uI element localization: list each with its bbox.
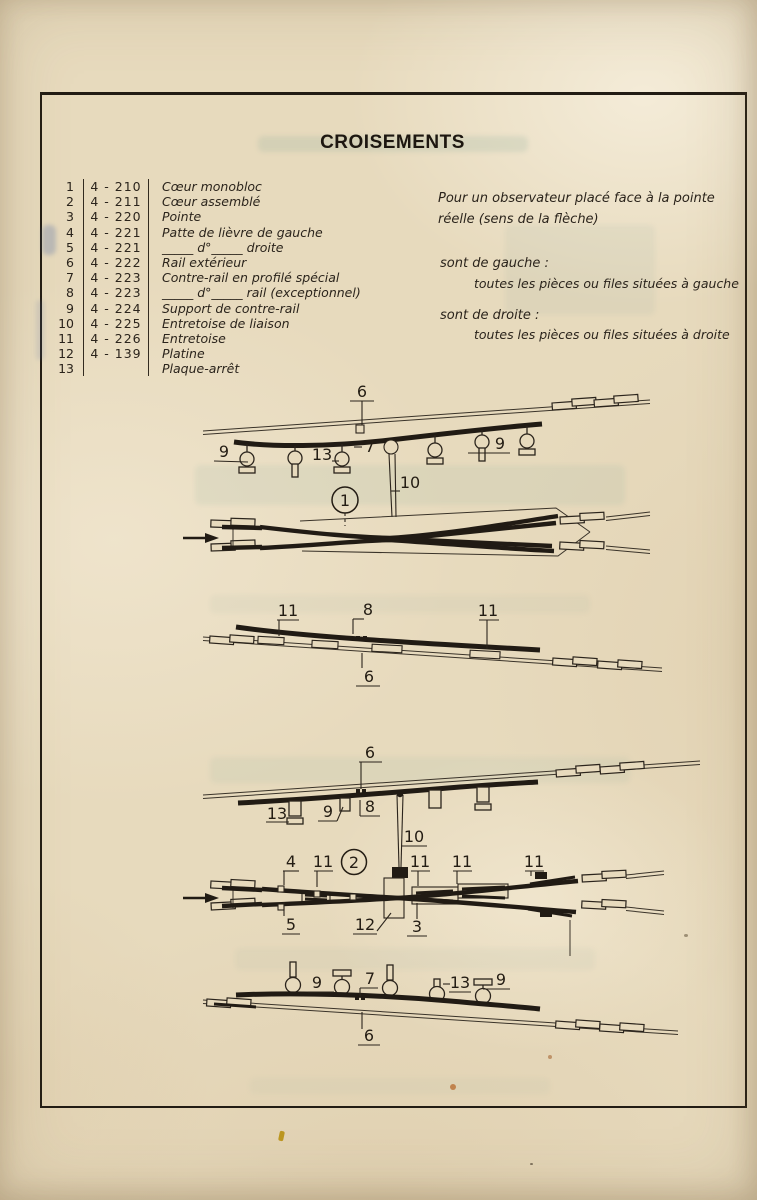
hanger-icon [475, 787, 491, 810]
rail-joint-icon [560, 540, 604, 552]
label-10: 10 [401, 827, 427, 846]
fixing-mark [356, 636, 360, 640]
diagram-double-crossing: 6 13 9 8 [183, 743, 700, 1045]
diagram-contre-rail-elevation: 11 8 11 6 [203, 600, 662, 686]
badge-2-text: 2 [349, 853, 359, 872]
figure-badge-1: 1 [332, 487, 358, 526]
label-10-text: 10 [404, 827, 424, 846]
label-9-text: 9 [323, 802, 333, 821]
label-13-text: 13 [450, 973, 470, 992]
label-6-text: 6 [364, 1026, 374, 1045]
label-9-text: 9 [495, 434, 505, 453]
rail-joint-icon [560, 512, 604, 524]
support-icon [383, 965, 398, 996]
scanned-page: CROISEMENTS 14 - 210Cœur monobloc24 - 21… [0, 0, 757, 1200]
label-5-text: 5 [286, 915, 296, 934]
label-11-text: 11 [452, 852, 472, 871]
outer-rail-line-top [203, 761, 700, 799]
label-7-text: 7 [365, 969, 375, 988]
label-7: 7 [360, 969, 378, 996]
label-5: 5 [282, 902, 300, 934]
direction-arrow-icon [183, 533, 219, 543]
badge-1-text: 1 [340, 491, 350, 510]
support-icon [427, 435, 443, 464]
label-6: 6 [350, 382, 374, 433]
label-8: 8 [353, 600, 373, 634]
rail-joint-icon [600, 761, 645, 774]
label-11-text: 11 [524, 852, 544, 871]
label-3-text: 3 [412, 917, 422, 936]
fixing-mark [355, 996, 359, 1000]
rail-joint-icon [582, 899, 626, 911]
label-9-text: 9 [219, 442, 229, 461]
label-13-top: 13 [266, 804, 289, 823]
figure-badge-2: 2 [342, 850, 367, 875]
contre-rail-top [238, 782, 538, 803]
label-8-text: 8 [365, 797, 375, 816]
hanger-icon [340, 798, 350, 811]
rail-joint-icon [598, 659, 643, 672]
label-12-text: 12 [355, 915, 375, 934]
crossing-plan [211, 870, 664, 956]
label-6-text: 6 [365, 743, 375, 762]
label-4-text: 4 [286, 852, 296, 871]
hanger-icon [287, 801, 303, 824]
support-icon [239, 444, 255, 473]
label-11-text: 11 [278, 601, 298, 620]
label-6-text: 6 [357, 382, 367, 401]
contre-rail-supports [239, 426, 535, 477]
label-13-bottom: 13 [443, 973, 471, 992]
label-9-top: 9 [318, 802, 343, 821]
liaison-rod [389, 454, 396, 517]
label-11-text: 11 [410, 852, 430, 871]
label-8-text: 8 [363, 600, 373, 619]
support-icon [288, 446, 302, 477]
label-11-b: 11 [410, 852, 430, 886]
label-7: 7 [354, 437, 375, 456]
label-13-text: 13 [267, 804, 287, 823]
label-13: 13 [312, 445, 339, 464]
label-6-bottom: 6 [358, 1012, 380, 1045]
contre-rail-bottom [236, 994, 540, 1009]
label-13-text: 13 [312, 445, 332, 464]
support-icon [475, 430, 489, 461]
label-4: 4 [283, 852, 299, 885]
label-8: 8 [360, 797, 380, 816]
support-icon [333, 970, 351, 995]
label-11-text: 11 [313, 852, 333, 871]
crossing-plan [211, 508, 650, 556]
fixing-mark [363, 636, 367, 640]
support-icon [334, 444, 350, 473]
support-icon [519, 426, 535, 455]
label-10-text: 10 [400, 473, 420, 492]
diagram-simple-crossing: 6 10 [183, 382, 650, 556]
support-icon [384, 440, 398, 454]
label-9-text: 9 [312, 973, 322, 992]
label-3: 3 [407, 903, 427, 936]
hanger-icon [429, 790, 441, 808]
rail-joint-icon [582, 870, 626, 882]
label-11-c: 11 [452, 852, 472, 884]
label-6-top: 6 [356, 743, 382, 793]
rail-joint-icon [556, 764, 601, 777]
support-icon [286, 962, 301, 993]
direction-arrow-icon [183, 893, 219, 903]
label-7-text: 7 [365, 437, 375, 456]
label-11-a: 11 [313, 852, 333, 887]
label-9-text: 9 [496, 970, 506, 989]
label-6-text: 6 [364, 667, 374, 686]
rail-joint-icon [210, 634, 255, 647]
label-11-text: 11 [478, 601, 498, 620]
diagrams-figure: 6 10 [0, 0, 757, 1200]
support-icon [474, 979, 492, 1004]
label-9-bottom-left: 9 [308, 973, 334, 992]
label-6: 6 [356, 653, 380, 686]
outer-rail-line [203, 394, 650, 434]
fixing-mark [361, 996, 365, 1000]
label-11-right: 11 [478, 601, 499, 649]
